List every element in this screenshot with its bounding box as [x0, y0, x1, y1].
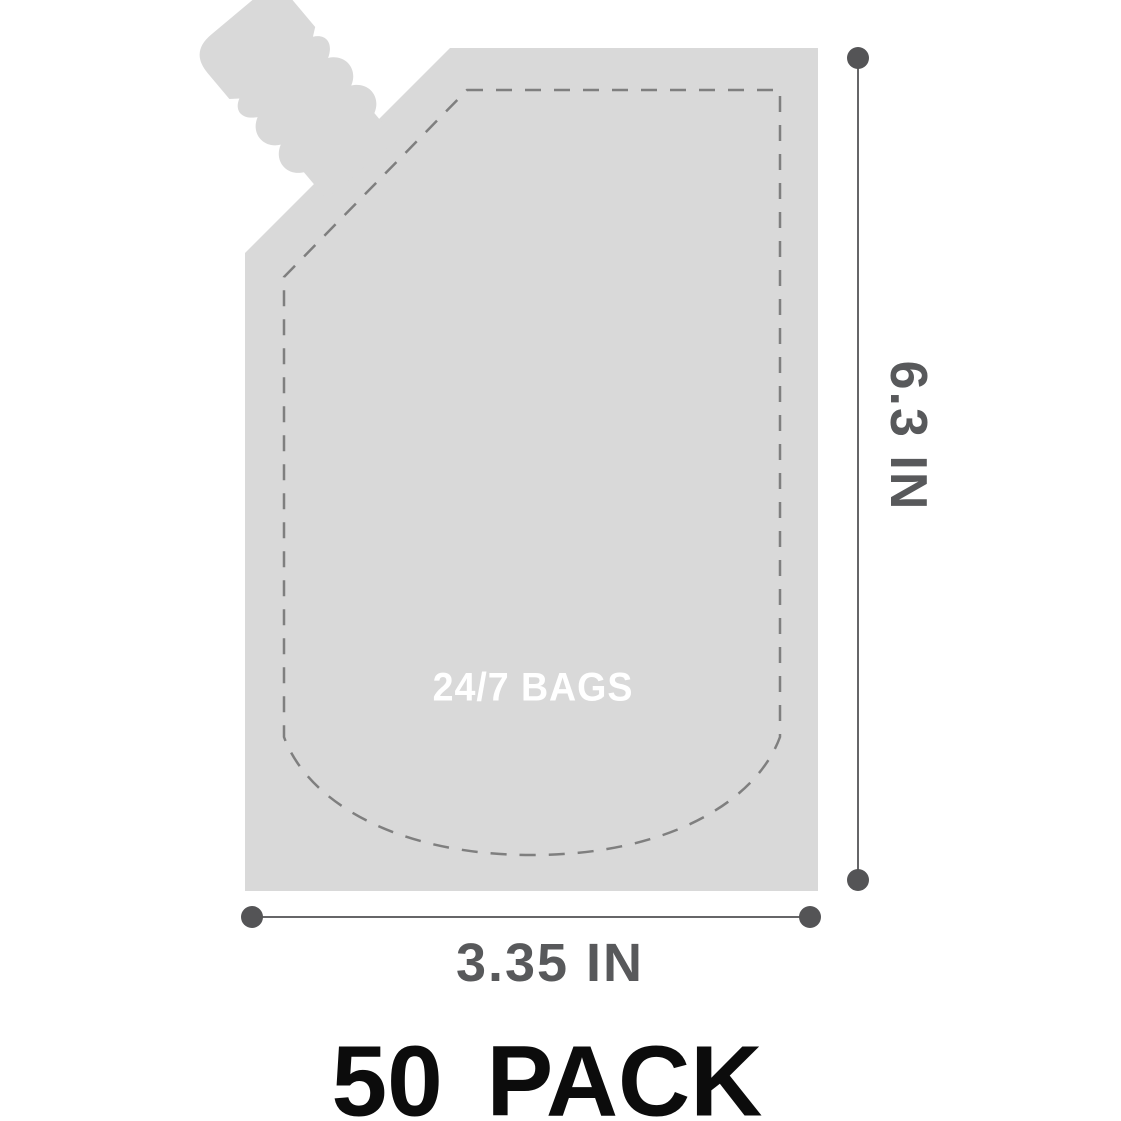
- width-dimension-left-dot-icon: [241, 906, 263, 928]
- height-dimension-label: 6.3 IN: [878, 361, 938, 512]
- width-dimension-right-dot-icon: [799, 906, 821, 928]
- height-dimension-bottom-dot-icon: [847, 869, 869, 891]
- width-dimension-label: 3.35 IN: [456, 932, 644, 994]
- pack-count-label: 50 PACK: [332, 1025, 763, 1121]
- product-dimension-diagram: 24/7 BAGS 6.3 IN 3.35 IN 50 PACK: [0, 0, 1121, 1121]
- brand-label: 24/7 BAGS: [433, 666, 634, 711]
- height-dimension-top-dot-icon: [847, 47, 869, 69]
